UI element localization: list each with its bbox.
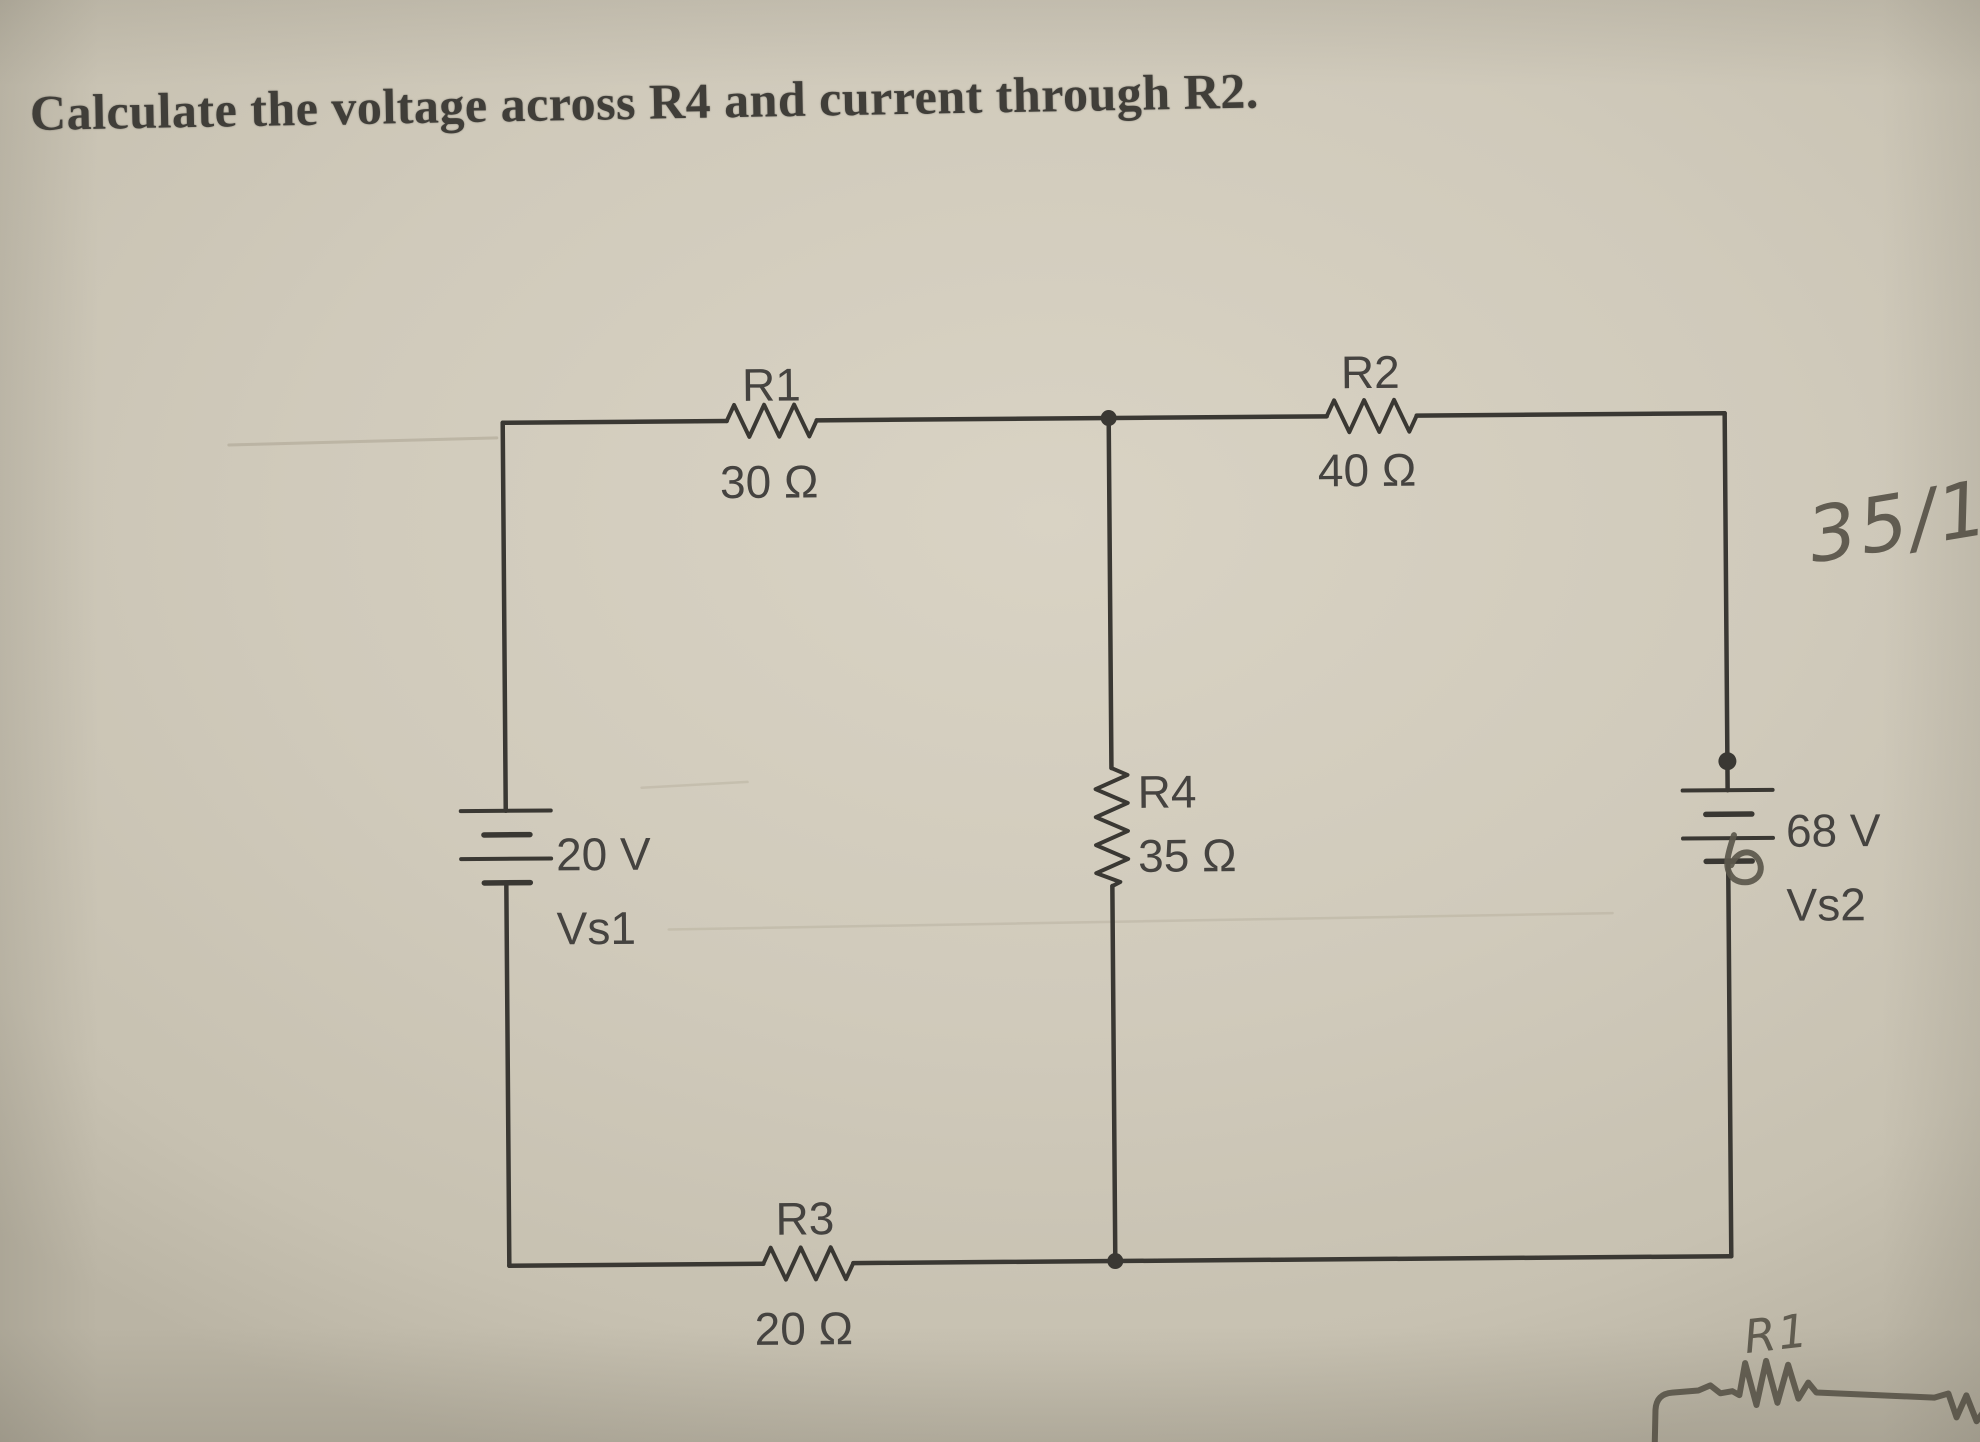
value-vs2: 68 V [1786,804,1881,857]
circuit-diagram: R1 30 Ω R2 40 Ω R4 35 Ω 20 V Vs1 68 V Vs… [0,0,1980,1442]
resistor-r4-zigzag [1095,768,1128,886]
handwritten-sketch-wire [1654,1359,1980,1442]
wire-top-left-segment [503,421,727,423]
value-r3: 20 Ω [754,1302,853,1355]
value-r2: 40 Ω [1318,444,1417,497]
handwritten-grade: 35/14 [1801,454,1980,580]
resistor-r2-zigzag [1327,400,1417,433]
label-vs2: Vs2 [1786,878,1866,931]
wire-middle-lower [1112,886,1115,1261]
wire-top-middle-segment [817,416,1327,420]
faint-smudge-mark [642,782,748,788]
value-vs1: 20 V [556,828,651,881]
faint-smudge-line-middle [669,913,1613,929]
worksheet-photo: Calculate the voltage across R4 and curr… [0,0,1980,1442]
label-r1: R1 [742,358,801,410]
resistor-r3-zigzag [763,1247,853,1280]
wire-right-upper [1725,413,1728,761]
handwritten-sketch-label: R1 [1741,1303,1812,1364]
label-r3: R3 [775,1192,834,1244]
wire-middle-upper [1109,418,1112,768]
vs1-plate-long-top [461,810,551,811]
wire-top-right-segment [1417,413,1725,415]
vs2-plate-long-bottom [1683,838,1773,839]
vs1-plate-long-bottom [461,858,551,859]
value-r1: 30 Ω [720,455,819,508]
wire-left-lower [506,883,509,1266]
wire-bottom-left-segment [509,1264,763,1266]
faint-smudge-line-left [229,438,497,445]
value-r4: 35 Ω [1138,829,1237,882]
label-r4: R4 [1137,765,1196,817]
wire-bottom-right-segment [853,1256,1731,1263]
vs2-plate-long-top [1683,790,1773,791]
wire-left-upper [503,423,506,811]
label-vs1: Vs1 [556,902,636,955]
label-r2: R2 [1341,346,1400,398]
wire-right-lower [1728,861,1731,1256]
